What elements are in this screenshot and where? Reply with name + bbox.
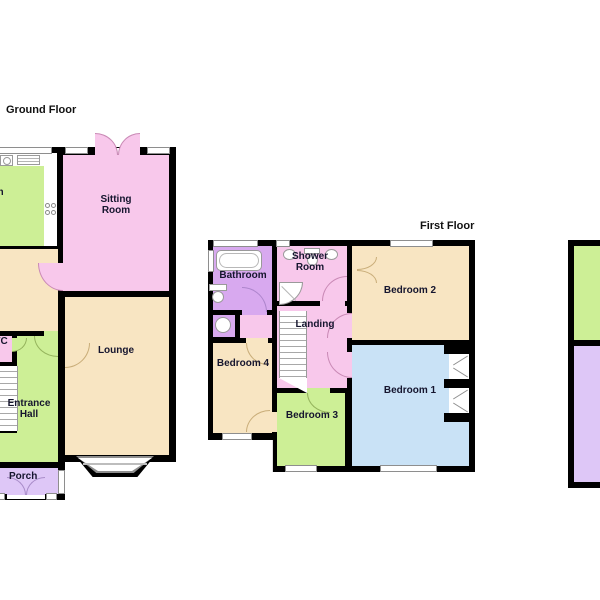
room-sitting bbox=[63, 155, 169, 291]
label-kitchen: Kitchen bbox=[0, 187, 4, 198]
floorplan-canvas: Ground Floor Kitchen Sitting Room Lounge… bbox=[0, 0, 600, 600]
bedroom-4-window bbox=[222, 433, 252, 440]
room-lounge bbox=[65, 297, 169, 455]
draining-board bbox=[17, 155, 40, 165]
sitting-room-window-left bbox=[65, 147, 88, 154]
label-shower-room: Shower Room bbox=[281, 251, 339, 273]
label-landing: Landing bbox=[283, 319, 347, 330]
bathroom-side-window bbox=[208, 250, 214, 272]
label-bedroom-1: Bedroom 1 bbox=[381, 385, 439, 396]
wardrobe-wall bbox=[444, 345, 469, 354]
bedroom-4-cupboard-opening bbox=[272, 412, 277, 432]
french-door-right-swing bbox=[118, 133, 140, 155]
shower-room-window bbox=[276, 240, 290, 247]
bedroom-1-window bbox=[380, 465, 437, 472]
hob-ring bbox=[45, 203, 50, 208]
bay-window-glazing-line bbox=[83, 463, 147, 465]
room-kitchen bbox=[0, 166, 44, 246]
second-floor-room-purple bbox=[574, 346, 600, 482]
landing-corridor bbox=[240, 315, 272, 338]
washing-machine-drum bbox=[3, 157, 11, 165]
bathroom-window bbox=[213, 240, 258, 247]
room-entrance-hall-lower bbox=[0, 433, 58, 462]
ground-floor-title: Ground Floor bbox=[6, 104, 76, 116]
wardrobe-wall bbox=[444, 413, 469, 422]
kitchen-window bbox=[0, 147, 52, 154]
bedroom-2-window bbox=[390, 240, 433, 247]
french-door-left-swing bbox=[95, 133, 118, 155]
label-wc: WC bbox=[0, 336, 8, 347]
hob-ring bbox=[51, 210, 56, 215]
label-lounge: Lounge bbox=[76, 345, 156, 356]
sitting-room-window-right bbox=[147, 147, 170, 154]
label-entrance-hall: Entrance Hall bbox=[0, 398, 60, 420]
hob-ring bbox=[51, 203, 56, 208]
hob-ring bbox=[45, 210, 50, 215]
bedroom-1-wardrobe bbox=[449, 388, 469, 413]
second-floor-room-green bbox=[574, 246, 600, 340]
label-bedroom-3: Bedroom 3 bbox=[280, 410, 344, 421]
room-dining-area bbox=[0, 249, 58, 331]
porch-side-window bbox=[58, 470, 65, 494]
label-bedroom-2: Bedroom 2 bbox=[381, 285, 439, 296]
first-floor-title: First Floor bbox=[420, 220, 474, 232]
label-porch: Porch bbox=[9, 471, 37, 482]
porch-window-right bbox=[46, 493, 57, 500]
bathtub-inner bbox=[219, 253, 259, 268]
wash-basin bbox=[215, 317, 231, 333]
toilet-cistern bbox=[209, 284, 227, 291]
label-sitting-room: Sitting Room bbox=[85, 194, 147, 216]
porch-window-left bbox=[0, 493, 5, 500]
label-bathroom: Bathroom bbox=[214, 270, 272, 281]
toilet-bowl bbox=[212, 291, 224, 303]
label-bedroom-4: Bedroom 4 bbox=[213, 358, 273, 369]
bedroom-3-window bbox=[285, 465, 317, 472]
wardrobe-wall bbox=[444, 379, 469, 388]
